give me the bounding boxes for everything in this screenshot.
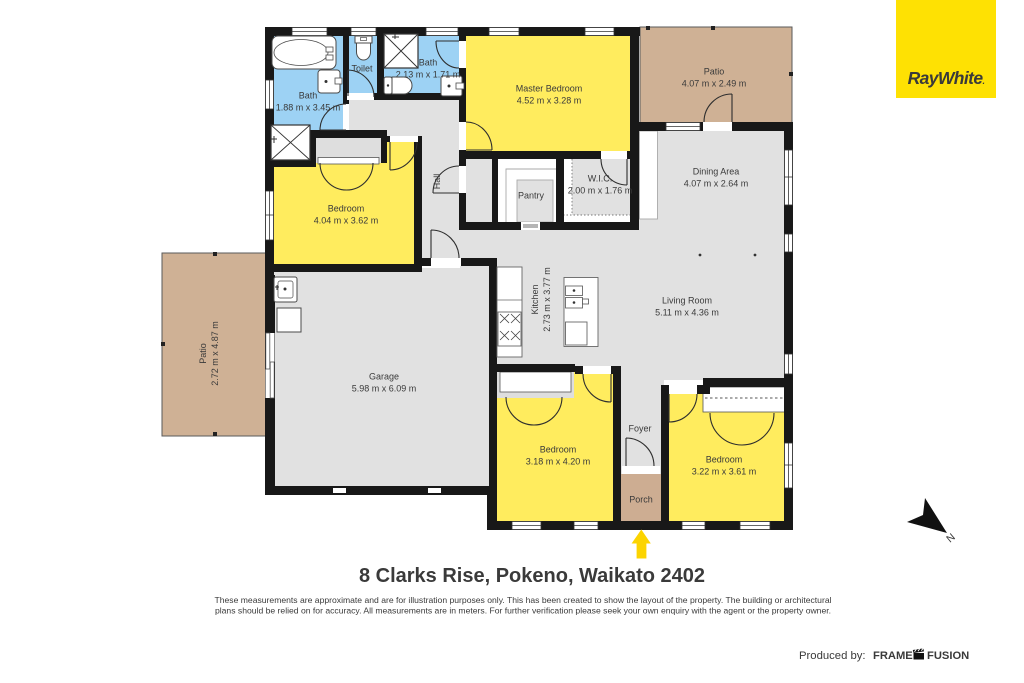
- svg-text:Master Bedroom: Master Bedroom: [516, 84, 583, 94]
- svg-text:3.18 m x 4.20 m: 3.18 m x 4.20 m: [526, 457, 591, 467]
- svg-text:Toilet: Toilet: [351, 64, 373, 74]
- svg-text:Bedroom: Bedroom: [540, 445, 577, 455]
- svg-text:8 Clarks Rise, Pokeno, Waikato: 8 Clarks Rise, Pokeno, Waikato 2402: [359, 565, 705, 587]
- svg-text:Bedroom: Bedroom: [706, 455, 743, 465]
- svg-text:Hall: Hall: [432, 174, 442, 190]
- svg-text:Bath: Bath: [299, 91, 318, 101]
- svg-text:4.52 m x 3.28 m: 4.52 m x 3.28 m: [517, 96, 582, 106]
- svg-text:2.00 m x 1.76 m: 2.00 m x 1.76 m: [568, 186, 633, 196]
- svg-text:4.07 m x 2.64 m: 4.07 m x 2.64 m: [684, 179, 749, 189]
- svg-text:plans should be relied on for: plans should be relied on for accuracy. …: [215, 606, 831, 616]
- svg-text:5.98 m x 6.09 m: 5.98 m x 6.09 m: [352, 384, 417, 394]
- svg-text:Pantry: Pantry: [518, 191, 545, 201]
- svg-text:Patio: Patio: [198, 343, 208, 364]
- svg-text:4.04 m x 3.62 m: 4.04 m x 3.62 m: [314, 216, 379, 226]
- svg-text:2.13 m x 1.71 m: 2.13 m x 1.71 m: [396, 70, 461, 80]
- svg-text:RayWhite.: RayWhite.: [908, 68, 985, 88]
- svg-text:1.88 m x 3.45 m: 1.88 m x 3.45 m: [276, 103, 341, 113]
- svg-text:Produced by:: Produced by:: [799, 650, 866, 662]
- svg-text:2.72 m x 4.87 m: 2.72 m x 4.87 m: [210, 321, 220, 386]
- svg-text:FUSION: FUSION: [927, 650, 969, 662]
- svg-text:Bedroom: Bedroom: [328, 204, 365, 214]
- svg-text:2.73 m x 3.77 m: 2.73 m x 3.77 m: [542, 267, 552, 332]
- svg-text:These measurements are approxi: These measurements are approximate and a…: [214, 595, 831, 605]
- svg-text:Bath: Bath: [419, 58, 438, 68]
- svg-text:Foyer: Foyer: [628, 424, 651, 434]
- svg-text:Kitchen: Kitchen: [530, 284, 540, 314]
- svg-text:Porch: Porch: [629, 495, 653, 505]
- svg-text:5.11 m x 4.36 m: 5.11 m x 4.36 m: [655, 308, 719, 318]
- svg-text:Patio: Patio: [704, 67, 725, 77]
- svg-text:4.07 m x 2.49 m: 4.07 m x 2.49 m: [682, 79, 747, 89]
- svg-text:Living Room: Living Room: [662, 296, 712, 306]
- svg-text:W.I.C.: W.I.C.: [588, 174, 613, 184]
- svg-text:FRAME: FRAME: [873, 650, 913, 662]
- svg-text:Dining Area: Dining Area: [693, 167, 740, 177]
- svg-text:Garage: Garage: [369, 372, 399, 382]
- svg-text:3.22 m x 3.61 m: 3.22 m x 3.61 m: [692, 467, 757, 477]
